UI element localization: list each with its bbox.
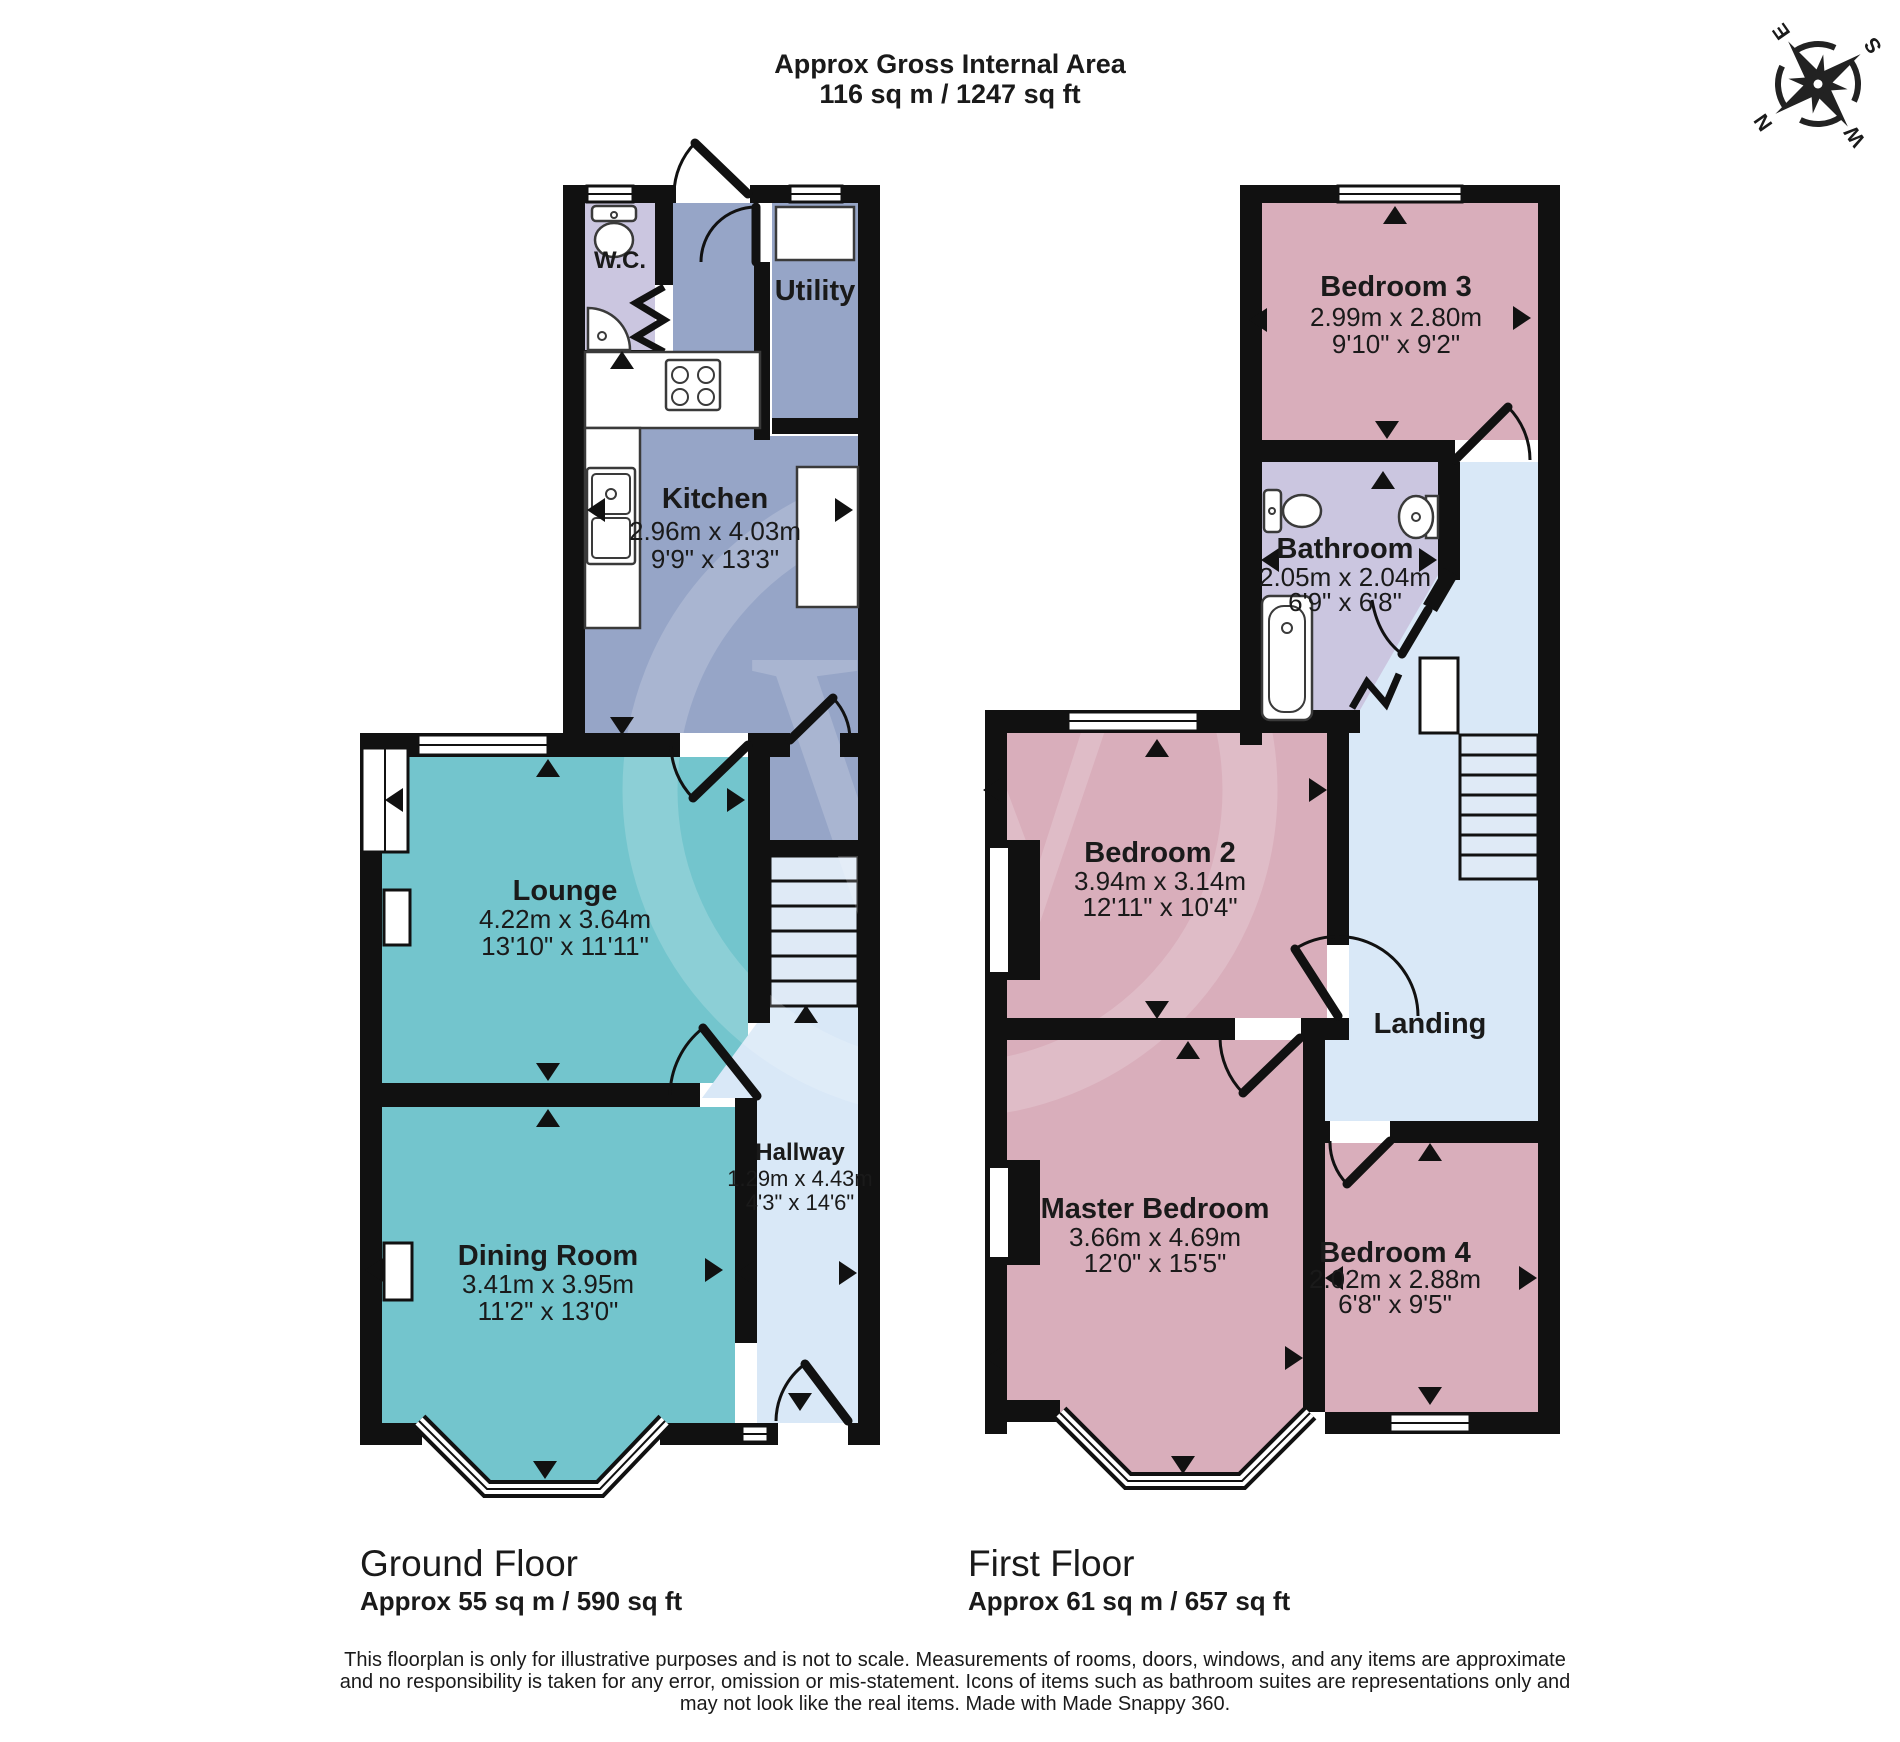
kitchen-sink-icon (587, 468, 635, 564)
bathroom-toilet-icon (1264, 490, 1321, 532)
utility-window (790, 186, 842, 202)
kitchen-dim-ft: 9'9" x 13'3" (651, 544, 779, 574)
bedroom3-dim-m: 2.99m x 2.80m (1310, 302, 1482, 332)
hallway-dim-ft: 4'3" x 14'6" (746, 1190, 854, 1215)
hallway-dim-m: 1.29m x 4.43m (727, 1166, 873, 1191)
compass-south-label: S (1860, 33, 1887, 58)
bedroom4-dim-ft: 6'8" x 9'5" (1338, 1289, 1452, 1319)
hallway-label: Hallway (755, 1139, 845, 1166)
kitchen-label: Kitchen (662, 483, 768, 515)
compass-east-label: E (1768, 19, 1795, 44)
bathroom-label: Bathroom (1277, 533, 1414, 565)
ground-floor-title: Ground Floor (360, 1543, 578, 1584)
dining-dim-m: 3.41m x 3.95m (462, 1269, 634, 1299)
page-title: Approx Gross Internal Area (774, 49, 1127, 79)
bedroom4-window (1390, 1414, 1470, 1432)
page-area: 116 sq m / 1247 sq ft (819, 79, 1080, 109)
bathroom-dim-ft: 6'9" x 6'8" (1288, 587, 1402, 617)
bedroom3-label: Bedroom 3 (1320, 271, 1471, 303)
ground-floor-area: Approx 55 sq m / 590 sq ft (360, 1586, 683, 1616)
hallway-sidelight-window (742, 1426, 768, 1442)
disclaimer-line-2: and no responsibility is taken for any e… (340, 1671, 1571, 1693)
dining-label: Dining Room (458, 1240, 638, 1272)
disclaimer-line-1: This floorplan is only for illustrative … (344, 1649, 1566, 1671)
landing-label: Landing (1374, 1008, 1487, 1040)
wc-window (587, 186, 633, 202)
compass-rose: N E S W (1713, 0, 1900, 189)
bathroom-sink-icon (1399, 496, 1438, 538)
utility-label: Utility (775, 275, 856, 307)
bedroom3-window (1338, 186, 1462, 202)
kitchen-dim-m: 2.96m x 4.03m (629, 516, 801, 546)
floorplan-page: W (0, 0, 1900, 1742)
watermark-glyph: W (752, 561, 1152, 1026)
bedroom2-label: Bedroom 2 (1084, 837, 1235, 869)
lounge-dim-m: 4.22m x 3.64m (479, 904, 651, 934)
bedroom3-dim-ft: 9'10" x 9'2" (1332, 329, 1460, 359)
header: Approx Gross Internal Area 116 sq m / 12… (774, 49, 1127, 109)
first-floor-area: Approx 61 sq m / 657 sq ft (968, 1586, 1291, 1616)
first-floor-stairs (1460, 735, 1538, 879)
lounge-label: Lounge (513, 875, 618, 907)
lounge-dim-ft: 13'10" x 11'11" (481, 931, 649, 961)
landing-cupboard (1420, 658, 1458, 733)
footer: Ground Floor Approx 55 sq m / 590 sq ft … (340, 1543, 1571, 1715)
floorplan-svg: W (0, 0, 1900, 1742)
lounge-top-window (418, 735, 548, 755)
dining-fireplace (384, 1243, 412, 1300)
master-dim-ft: 12'0" x 15'5" (1084, 1248, 1227, 1278)
disclaimer-line-3: may not look like the real items. Made w… (680, 1693, 1230, 1715)
master-label: Master Bedroom (1041, 1193, 1270, 1225)
compass-north-label: N (1750, 109, 1778, 135)
kitchen-hob-icon (666, 360, 720, 410)
kitchen-fridge-icon (797, 467, 858, 607)
lounge-fireplace (384, 890, 410, 945)
wc-label: W.C. (594, 247, 646, 274)
bedroom2-dim-ft: 12'11" x 10'4" (1082, 892, 1237, 922)
bedroom2-window (1068, 712, 1198, 731)
first-floor-title: First Floor (968, 1543, 1135, 1584)
dining-dim-ft: 11'2" x 13'0" (478, 1296, 619, 1326)
compass-west-label: W (1840, 121, 1870, 151)
utility-appliance-icon (776, 207, 854, 260)
